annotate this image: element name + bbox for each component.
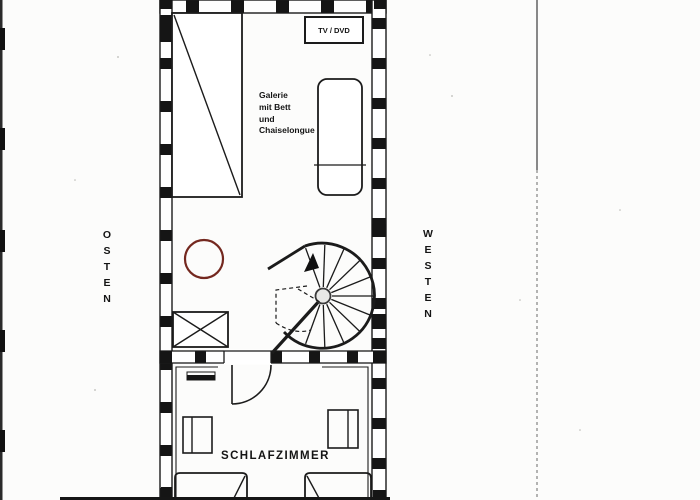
label-galerie-line-1: Galerie [259, 90, 315, 102]
spiral-staircase [268, 243, 374, 353]
gallery-bed [172, 13, 242, 197]
bedroom-furniture [175, 365, 371, 500]
wardrobe-right [328, 410, 358, 448]
wall-left [160, 0, 172, 500]
wall-top [160, 0, 386, 13]
label-tv-dvd: TV / DVD [305, 17, 363, 43]
label-westen: WESTEN [422, 228, 434, 324]
door-opening [224, 350, 271, 365]
wall-shelf [187, 372, 215, 380]
label-galerie-line-4: Chaiselongue [259, 125, 315, 137]
scanned-floor-plan-page: OSTEN WESTEN TV / DVD Galerie mit Bett u… [0, 0, 700, 500]
scan-artifacts [0, 0, 621, 500]
label-galerie-line-3: und [259, 114, 315, 126]
stair-direction-arrow-icon [304, 253, 319, 272]
wall-right [372, 0, 386, 500]
bedroom-inner-outline [176, 367, 368, 500]
round-table [185, 240, 223, 278]
bedroom-door-swing [232, 365, 271, 404]
label-osten: OSTEN [101, 229, 113, 309]
chaiselongue [314, 79, 366, 195]
wardrobe-left [183, 417, 212, 453]
label-galerie: Galerie mit Bett und Chaiselongue [259, 90, 315, 137]
label-schlafzimmer: SCHLAFZIMMER [221, 450, 330, 462]
stair-rail-tangent [268, 246, 305, 269]
bed-right [305, 473, 371, 500]
bed-left [175, 473, 247, 500]
gallery-furniture [172, 13, 366, 347]
crossed-box [173, 312, 228, 347]
label-galerie-line-2: mit Bett [259, 102, 315, 114]
